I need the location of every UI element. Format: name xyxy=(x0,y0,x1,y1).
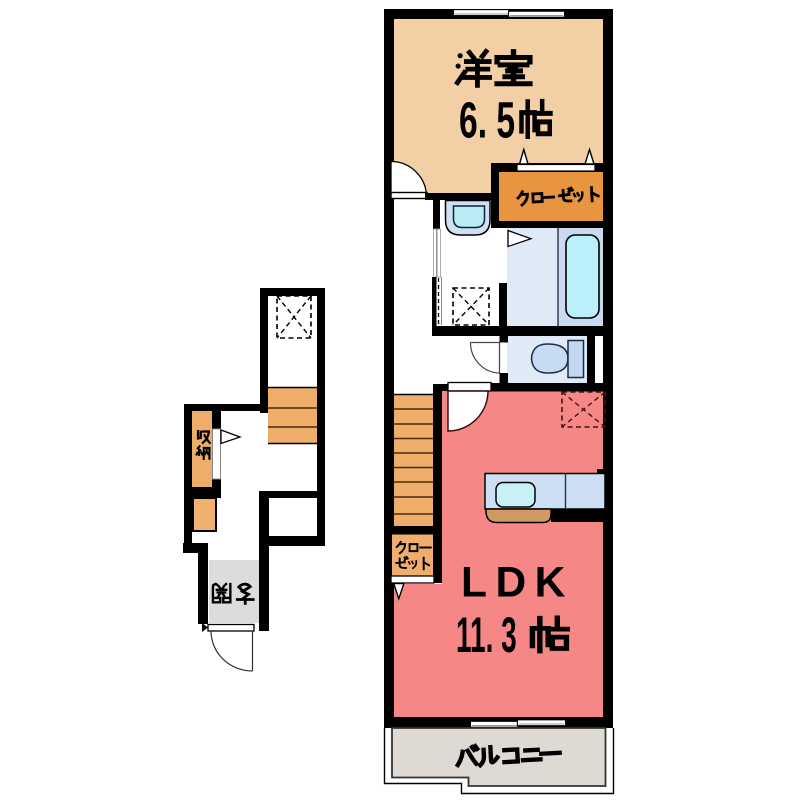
svg-text:11. 3: 11. 3 xyxy=(456,606,517,663)
svg-text:LDK: LDK xyxy=(461,560,574,607)
svg-text:6. 5: 6. 5 xyxy=(459,93,515,150)
